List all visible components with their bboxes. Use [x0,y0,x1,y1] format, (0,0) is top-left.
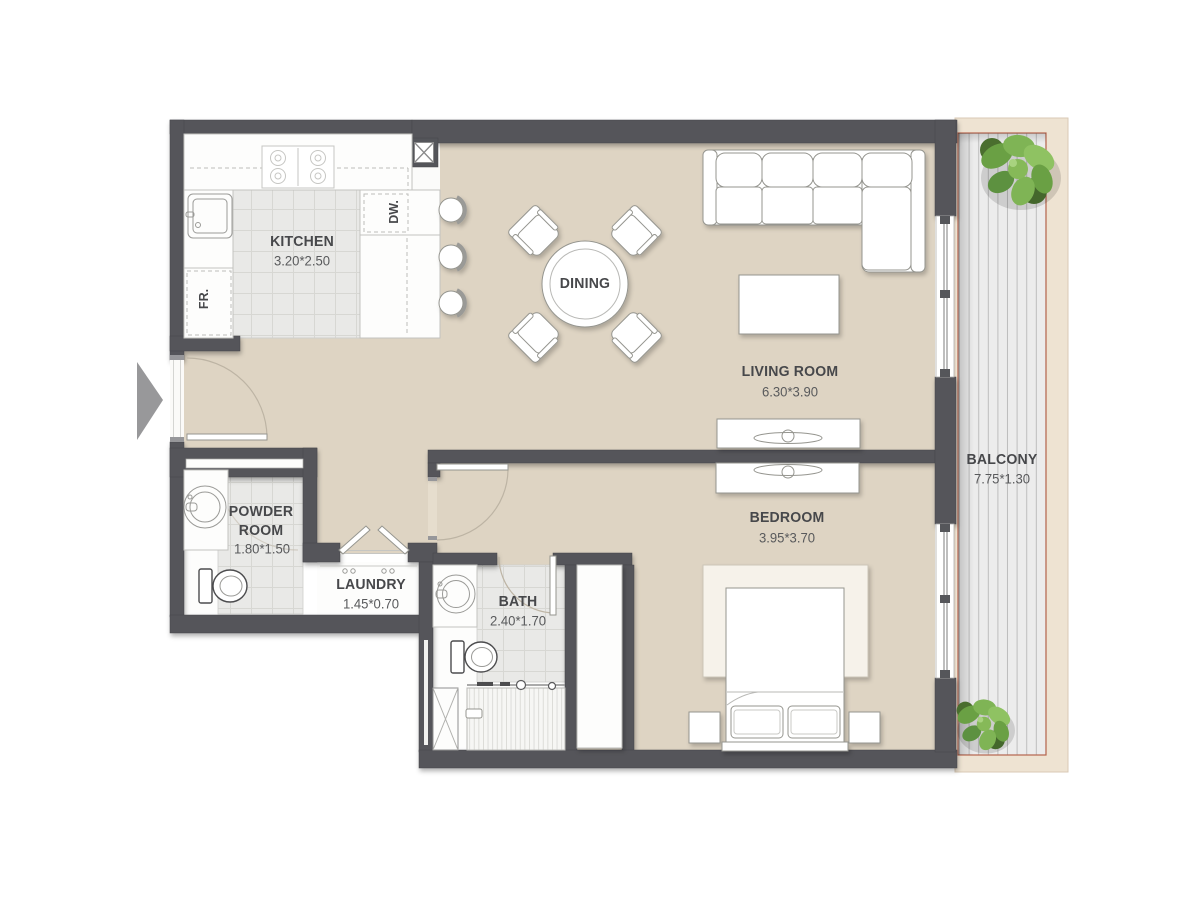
wardrobe-closet [577,565,622,748]
living-room-label: LIVING ROOM [742,365,839,380]
entrance-arrow-icon [137,362,163,440]
living-room-dims: 6.30*3.90 [762,385,818,399]
tv-console-living [717,419,860,448]
powder-room-dims: 1.80*1.50 [234,542,290,556]
kitchen-label: KITCHEN [270,235,334,250]
powder-room-label-2: ROOM [239,524,284,539]
column-marker [410,138,438,167]
powder-room-label-1: POWDER [229,505,293,520]
floor-plan-svg [0,0,1200,900]
pillow-right [788,706,840,738]
headboard [722,742,848,751]
balcony-label: BALCONY [967,453,1038,468]
shower [466,681,565,751]
nightstand-left [689,712,720,743]
bed-area [689,565,880,751]
dining-label: DINING [560,277,610,292]
balcony-dims: 7.75*1.30 [974,472,1030,486]
bath-dims: 2.40*1.70 [490,614,546,628]
floor-plan-page: KITCHEN 3.20*2.50 DINING LIVING ROOM 6.3… [0,0,1200,900]
balcony-area [955,118,1068,772]
bath-toilet [451,641,497,673]
dishwasher-label: DW. [388,200,401,224]
bar-stools [439,197,465,316]
wall-slit [424,640,428,745]
bedroom-window [936,524,954,678]
living-room-window [936,216,954,377]
shaft [433,688,458,750]
stove-cooktop [262,146,334,188]
bath-sink [433,565,477,627]
laundry-label: LAUNDRY [336,578,406,593]
laundry-dims: 1.45*0.70 [343,597,399,611]
bedroom-label: BEDROOM [750,511,825,526]
powder-sink [184,470,228,550]
pillow-left [731,706,783,738]
coffee-table [739,275,839,334]
fridge-label: FR. [198,289,211,309]
powder-toilet [199,569,247,603]
bath-label: BATH [499,595,538,610]
shower-head [466,709,482,718]
nightstand-right [849,712,880,743]
kitchen-dims: 3.20*2.50 [274,254,330,268]
bedroom-dims: 3.95*3.70 [759,531,815,545]
tv-console-bedroom [716,463,859,493]
